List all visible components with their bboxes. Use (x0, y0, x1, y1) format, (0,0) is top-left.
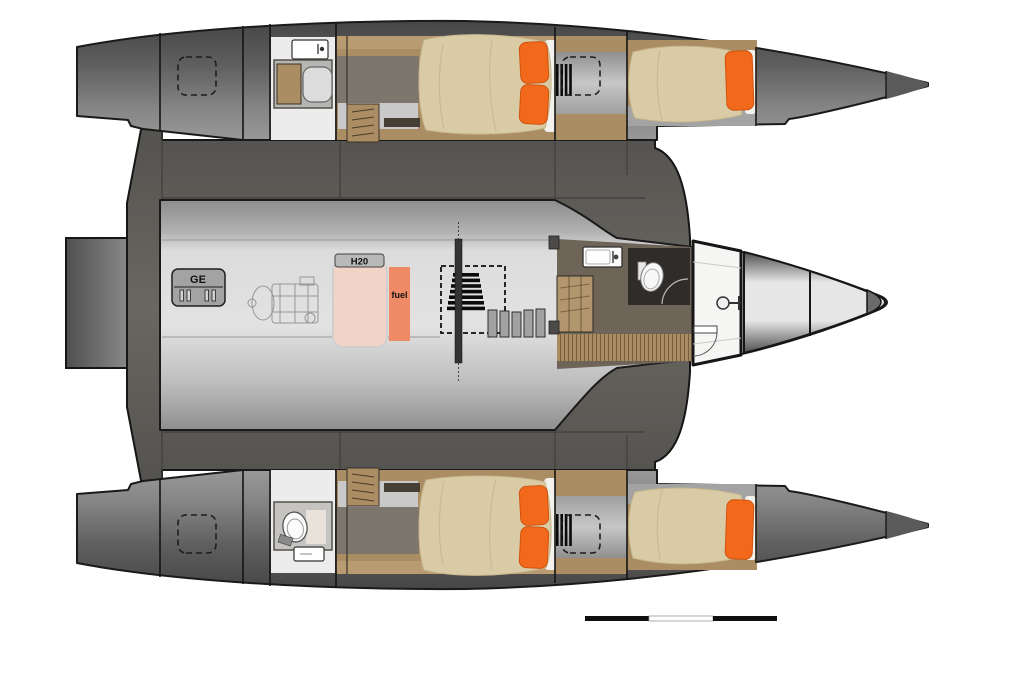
galley-area (549, 236, 692, 369)
fuel-tank-label: fuel (391, 290, 407, 300)
scale-bar (585, 616, 777, 621)
bathroom-sink (294, 547, 324, 561)
trimaran-floorplan: GE H20 fuel (0, 0, 1024, 696)
steps-row (488, 309, 545, 337)
wood-slat-floor (557, 334, 692, 361)
starboard-hull (77, 468, 928, 589)
port-hull (77, 21, 928, 142)
water-tank-label: H20 (351, 257, 368, 268)
galley-sink (583, 247, 622, 267)
faucet-icon (614, 255, 619, 260)
mast-post (455, 239, 462, 363)
water-tank: H20 (333, 254, 387, 347)
center-hull: GE H20 fuel (160, 200, 887, 430)
toilet-room (628, 248, 690, 305)
fuel-tank: fuel (389, 267, 410, 341)
generator-box: GE (172, 269, 225, 306)
forepeak-cabin (693, 241, 741, 365)
shower-seat (303, 67, 332, 102)
center-bow (744, 252, 885, 353)
galley-steps (557, 276, 593, 332)
swim-platform (66, 238, 127, 368)
generator-label: GE (190, 274, 206, 286)
bathroom-sink (292, 40, 328, 59)
door-leaf (694, 326, 717, 333)
